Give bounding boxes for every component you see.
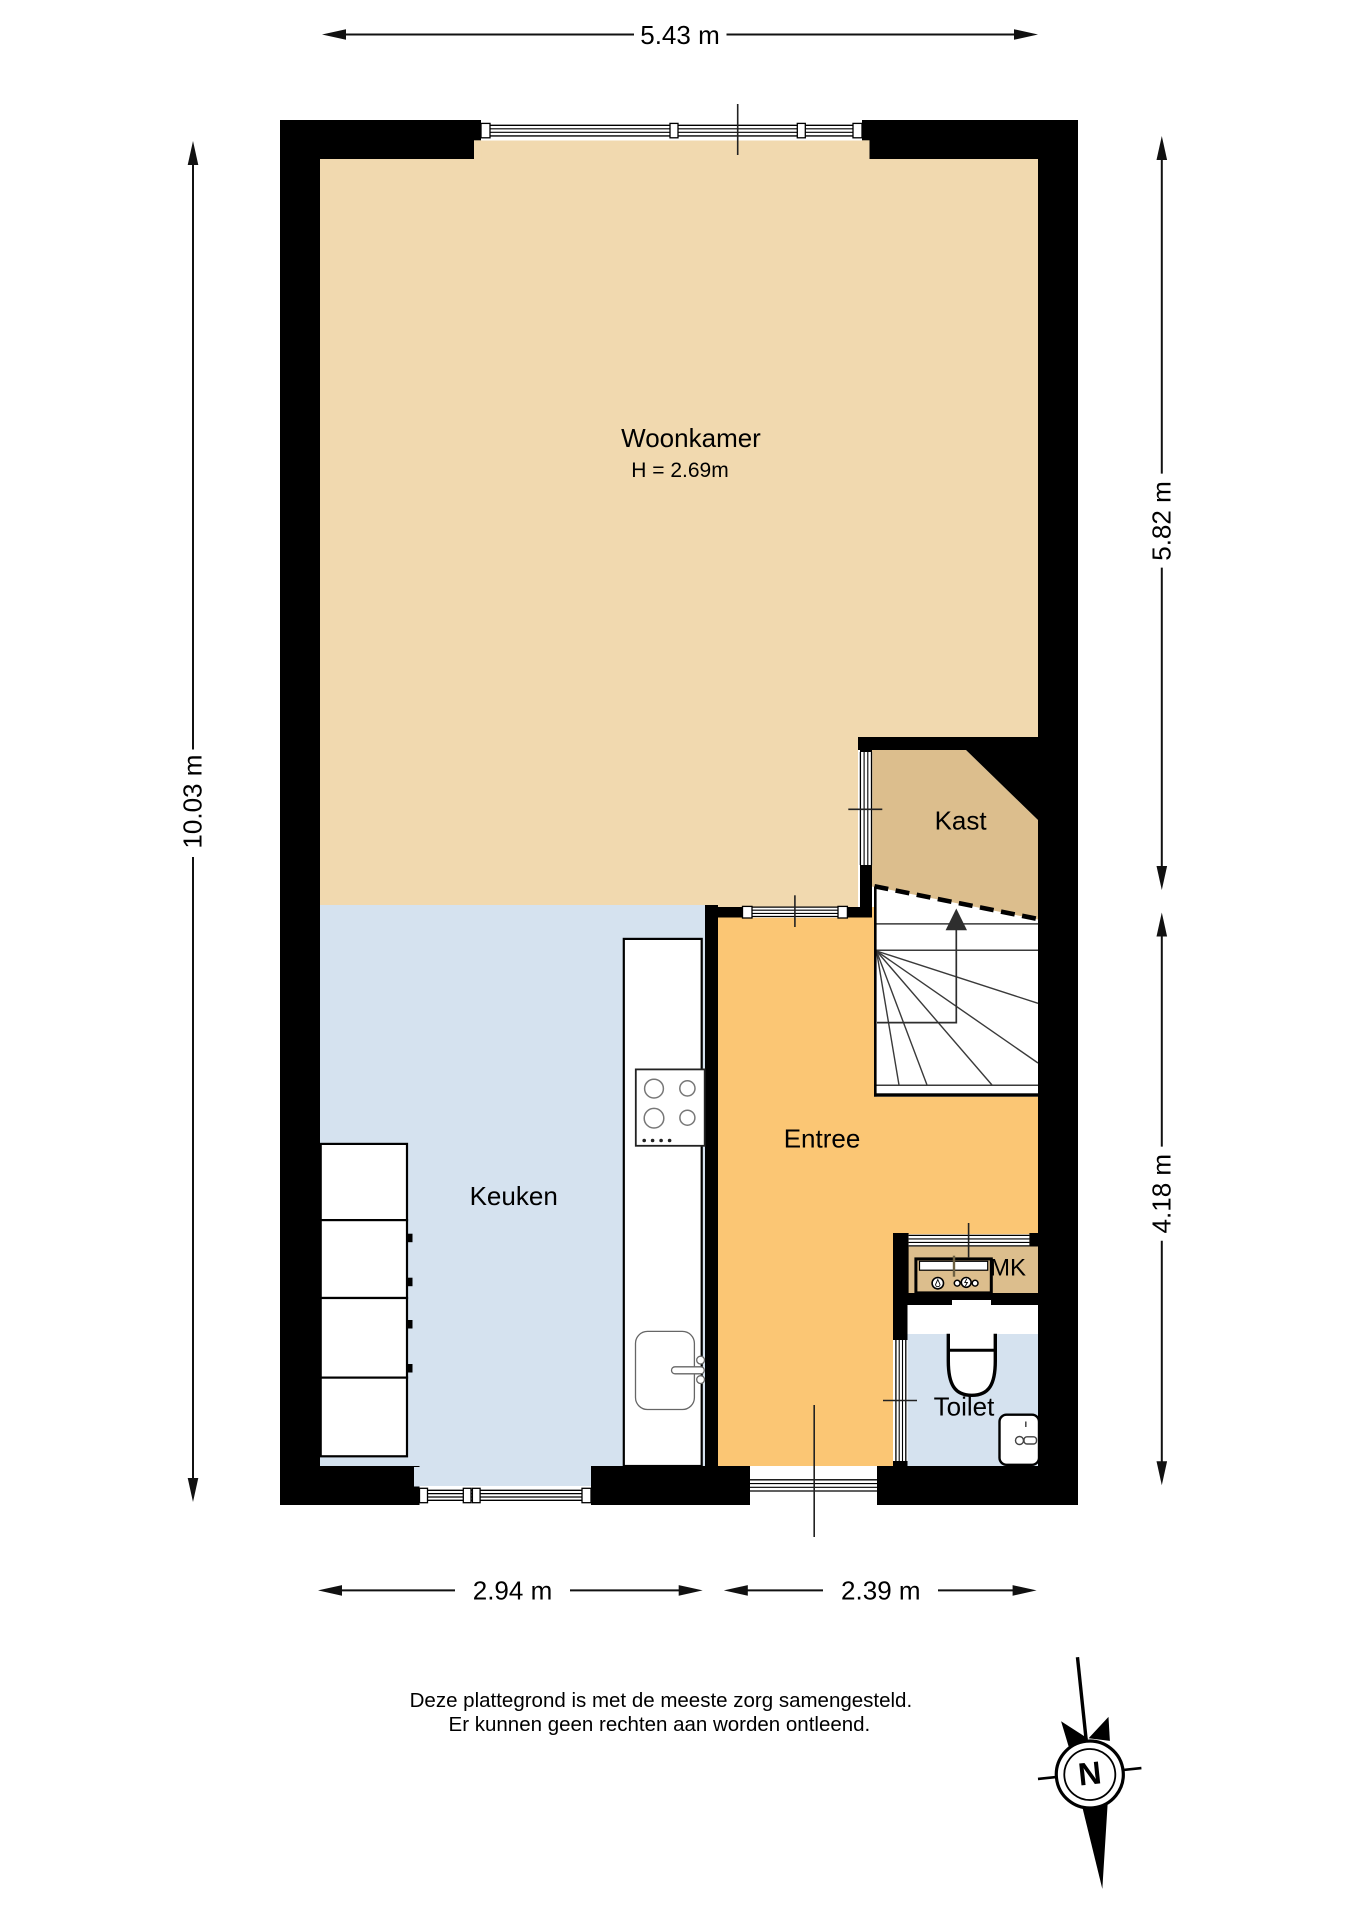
svg-text:4.18 m: 4.18 m	[1146, 1154, 1176, 1234]
svg-text:N: N	[1076, 1754, 1103, 1792]
svg-text:MK: MK	[990, 1255, 1026, 1282]
svg-text:H = 2.69m: H = 2.69m	[631, 459, 728, 482]
svg-text:Deze plattegrond is met de mee: Deze plattegrond is met de meeste zorg s…	[410, 1689, 913, 1712]
svg-text:Er kunnen geen rechten aan wor: Er kunnen geen rechten aan worden ontlee…	[449, 1713, 871, 1736]
svg-text:Toilet: Toilet	[934, 1392, 995, 1422]
svg-text:2.39 m: 2.39 m	[841, 1576, 921, 1606]
svg-text:Keuken: Keuken	[470, 1181, 558, 1211]
svg-text:Kast: Kast	[935, 806, 988, 836]
svg-text:2.94 m: 2.94 m	[473, 1576, 553, 1606]
svg-text:Entree: Entree	[784, 1124, 861, 1154]
svg-text:10.03 m: 10.03 m	[178, 755, 208, 849]
svg-text:5.82 m: 5.82 m	[1146, 481, 1176, 561]
svg-text:Woonkamer: Woonkamer	[621, 423, 761, 453]
svg-text:5.43 m: 5.43 m	[640, 20, 720, 50]
